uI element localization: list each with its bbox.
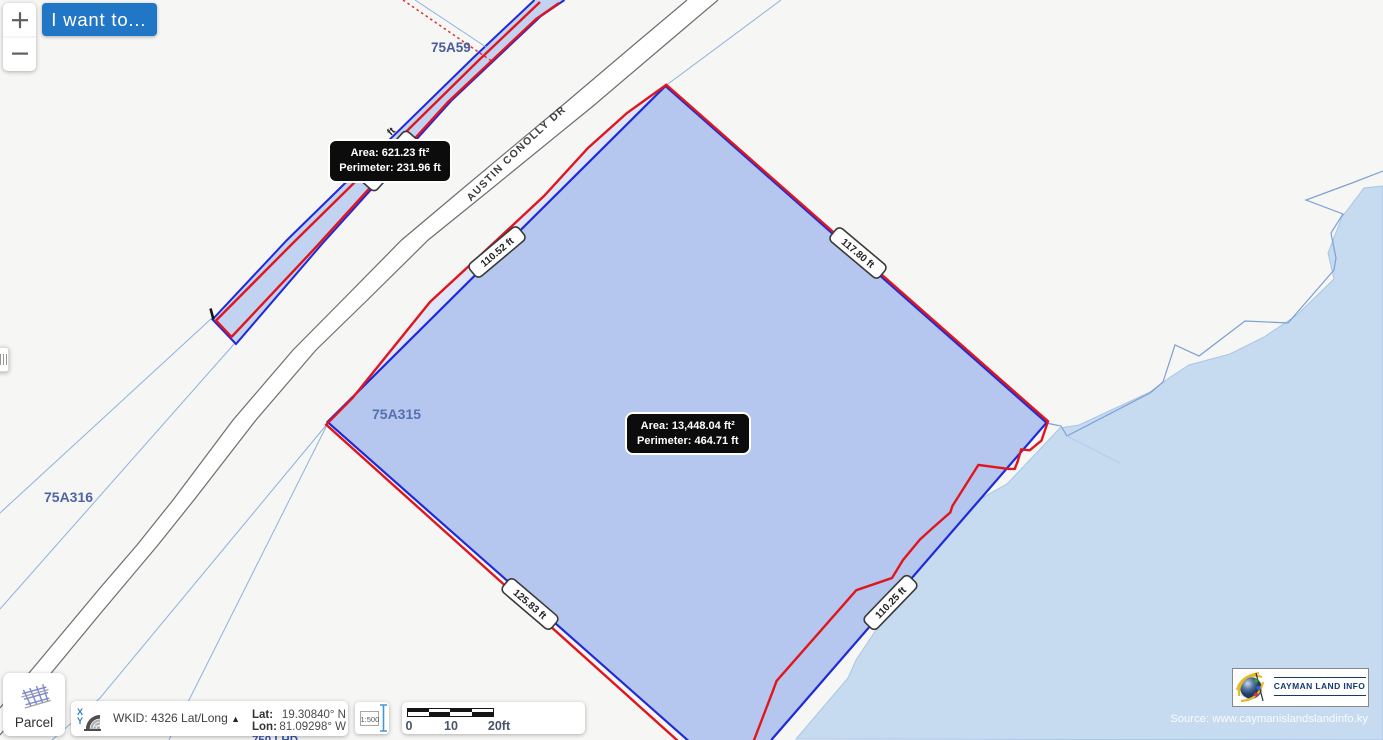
svg-text:75A316: 75A316 [44,489,93,505]
svg-text:75A59: 75A59 [431,40,471,55]
svg-text:Y: Y [77,716,83,726]
svg-text:75A315: 75A315 [372,406,421,422]
